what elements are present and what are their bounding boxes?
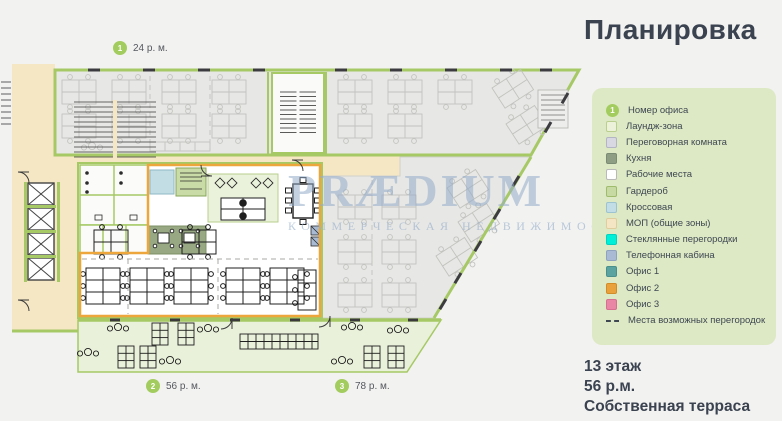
legend-label: Гардероб bbox=[626, 186, 668, 197]
info-workplaces: 56 р.м. bbox=[584, 377, 750, 397]
zone-office3-unavailable bbox=[322, 157, 531, 318]
legend-item: Кухня bbox=[606, 151, 768, 167]
legend-item: Офис 3 bbox=[606, 296, 768, 312]
office-marker-2: 2 56 р. м. bbox=[146, 379, 201, 393]
legend-item: Рабочие места bbox=[606, 167, 768, 183]
office-marker-1: 1 24 р. м. bbox=[113, 41, 168, 55]
dashed-line-icon bbox=[606, 320, 619, 322]
floorplan-page: PRÆDIUM КОММЕРЧЕСКАЯ НЕДВИЖИМОСТЬ Планир… bbox=[0, 0, 782, 421]
legend-item: Стеклянные перегородки bbox=[606, 232, 768, 248]
window-hatch-left bbox=[1, 82, 11, 124]
color-swatch-icon bbox=[606, 186, 617, 197]
color-swatch-icon bbox=[606, 234, 617, 245]
legend-item: Гардероб bbox=[606, 183, 768, 199]
legend-item: Офис 1 bbox=[606, 264, 768, 280]
room-wardrobe bbox=[176, 168, 206, 196]
page-title: Планировка bbox=[584, 14, 757, 46]
room-lounge bbox=[208, 174, 278, 222]
legend-label: Телефонная кабина bbox=[626, 250, 715, 261]
color-swatch-icon bbox=[606, 137, 617, 148]
color-swatch-icon bbox=[606, 250, 617, 261]
legend-item: Места возможных перегородок bbox=[606, 312, 768, 328]
legend-item: 1Номер офиса bbox=[606, 102, 768, 118]
zone-terrace bbox=[77, 319, 441, 373]
office-number-badge: 3 bbox=[335, 379, 349, 393]
color-swatch-icon bbox=[606, 218, 617, 229]
color-swatch-icon bbox=[606, 266, 617, 277]
office-number-badge: 2 bbox=[146, 379, 160, 393]
legend-item: Офис 2 bbox=[606, 280, 768, 296]
color-swatch-icon bbox=[606, 169, 617, 180]
legend-item: Переговорная комната bbox=[606, 134, 768, 150]
color-swatch-icon bbox=[606, 121, 617, 132]
legend-label: Переговорная комната bbox=[626, 137, 727, 148]
legend-label: Офис 3 bbox=[626, 299, 659, 310]
office-marker-label: 56 р. м. bbox=[166, 381, 201, 392]
legend-label: Рабочие места bbox=[626, 169, 692, 180]
office-marker-label: 24 р. м. bbox=[133, 43, 168, 54]
office-marker-label: 78 р. м. bbox=[355, 381, 390, 392]
office-number-badge-icon: 1 bbox=[606, 104, 619, 117]
color-swatch-icon bbox=[606, 299, 617, 310]
legend-label: МОП (общие зоны) bbox=[626, 218, 710, 229]
room-cross-connect bbox=[150, 170, 174, 194]
color-swatch-icon bbox=[606, 153, 617, 164]
legend-label: Офис 1 bbox=[626, 266, 659, 277]
staircase-right bbox=[538, 90, 568, 128]
legend-item: Лаундж-зона bbox=[606, 118, 768, 134]
elevator-shafts bbox=[24, 182, 60, 282]
legend-item: Кроссовая bbox=[606, 199, 768, 215]
legend: 1Номер офисаЛаундж-зонаПереговорная комн… bbox=[592, 88, 776, 345]
color-swatch-icon bbox=[606, 283, 617, 294]
legend-label: Кухня bbox=[626, 153, 651, 164]
staircase-core bbox=[272, 73, 324, 153]
legend-label: Офис 2 bbox=[626, 283, 659, 294]
info-terrace: Собственная терраса bbox=[584, 397, 750, 417]
info-floor: 13 этаж bbox=[584, 357, 750, 377]
office-marker-3: 3 78 р. м. bbox=[335, 379, 390, 393]
legend-item: Телефонная кабина bbox=[606, 248, 768, 264]
legend-label: Места возможных перегородок bbox=[628, 315, 765, 326]
color-swatch-icon bbox=[606, 202, 617, 213]
office-number-badge: 1 bbox=[113, 41, 127, 55]
info-block: 13 этаж 56 р.м. Собственная терраса bbox=[584, 357, 750, 417]
legend-label: Лаундж-зона bbox=[626, 121, 683, 132]
legend-label: Кроссовая bbox=[626, 202, 672, 213]
legend-item: МОП (общие зоны) bbox=[606, 215, 768, 231]
legend-label: Номер офиса bbox=[628, 105, 688, 116]
legend-label: Стеклянные перегородки bbox=[626, 234, 737, 245]
